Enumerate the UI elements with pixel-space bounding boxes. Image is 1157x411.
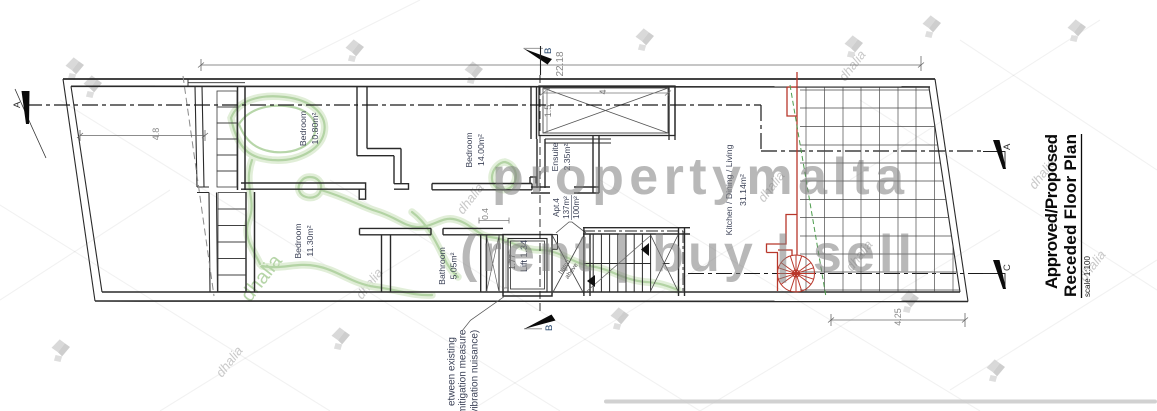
svg-text:Bedroom: Bedroom bbox=[293, 223, 303, 258]
svg-text:C: C bbox=[1002, 264, 1013, 271]
svg-text:B: B bbox=[543, 48, 554, 54]
svg-text:14.00m²: 14.00m² bbox=[476, 134, 486, 166]
svg-text:Receded Floor Plan: Receded Floor Plan bbox=[1061, 134, 1080, 297]
svg-text:4.25: 4.25 bbox=[893, 308, 903, 326]
svg-text:etween existing: etween existing bbox=[447, 337, 458, 406]
svg-text:scale 1:100: scale 1:100 bbox=[1083, 256, 1092, 297]
svg-text:4.8: 4.8 bbox=[151, 128, 161, 141]
svg-text:(vibration nuisance): (vibration nuisance) bbox=[470, 330, 481, 411]
svg-text:10.80m²: 10.80m² bbox=[310, 112, 320, 144]
svg-text:1.5: 1.5 bbox=[543, 105, 553, 118]
svg-text:A: A bbox=[1002, 143, 1013, 150]
svg-text:Bathroom: Bathroom bbox=[437, 247, 447, 285]
svg-text:5.05m²: 5.05m² bbox=[449, 252, 459, 279]
svg-text:4: 4 bbox=[598, 89, 608, 94]
svg-text:Approved/Proposed: Approved/Proposed bbox=[1042, 134, 1061, 289]
svg-text:B: B bbox=[544, 325, 555, 331]
svg-text:Bedroom: Bedroom bbox=[464, 132, 474, 167]
svg-text:22.18: 22.18 bbox=[555, 51, 566, 76]
svg-text:mitigation measure: mitigation measure bbox=[458, 329, 469, 411]
svg-text:propertymalta: propertymalta bbox=[492, 148, 905, 206]
svg-text:A: A bbox=[12, 101, 23, 108]
svg-text:Bedroom: Bedroom bbox=[298, 111, 308, 146]
svg-text:0.4: 0.4 bbox=[480, 208, 490, 220]
svg-text:11.30m²: 11.30m² bbox=[305, 225, 315, 256]
